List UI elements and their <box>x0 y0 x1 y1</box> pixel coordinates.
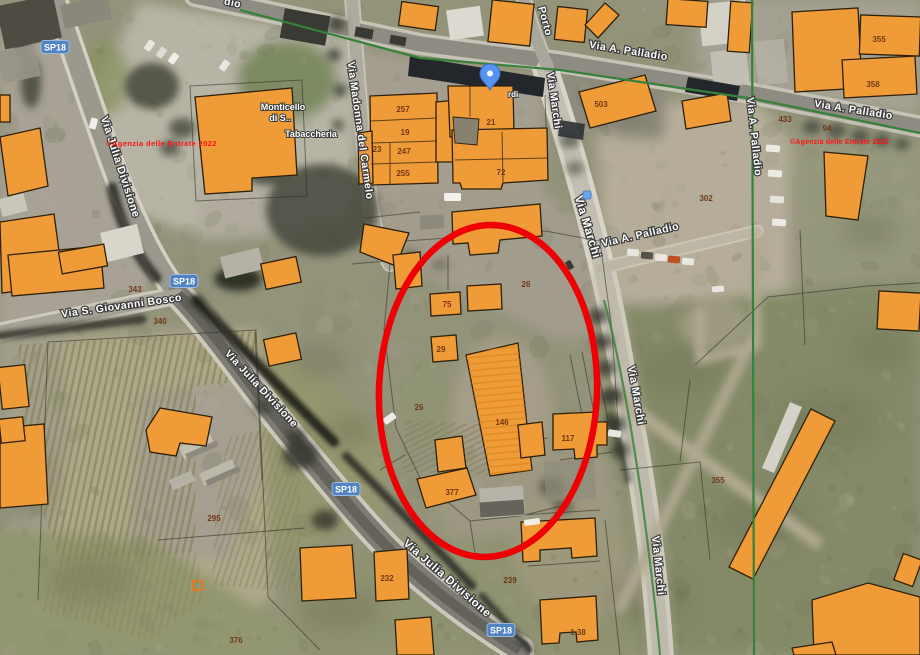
svg-text:340: 340 <box>153 317 167 326</box>
svg-text:355: 355 <box>711 476 725 485</box>
svg-text:117: 117 <box>562 434 575 443</box>
svg-text:19: 19 <box>401 128 410 137</box>
svg-text:23: 23 <box>373 145 382 154</box>
svg-text:376: 376 <box>229 636 243 645</box>
svg-text:©Agenzia delle Entrate 2022: ©Agenzia delle Entrate 2022 <box>106 139 217 148</box>
svg-text:232: 232 <box>380 574 394 583</box>
svg-text:SP18: SP18 <box>44 43 66 53</box>
svg-text:343: 343 <box>128 285 142 294</box>
svg-text:72: 72 <box>497 168 506 177</box>
svg-text:75: 75 <box>443 300 452 309</box>
svg-text:257: 257 <box>396 105 410 114</box>
svg-text:SP18: SP18 <box>490 626 512 636</box>
svg-text:1.38: 1.38 <box>570 628 586 637</box>
svg-text:Monticello: Monticello <box>261 102 306 112</box>
svg-text:302: 302 <box>699 194 713 203</box>
svg-text:Tabaccheria: Tabaccheria <box>285 129 338 139</box>
svg-text:295: 295 <box>207 514 221 523</box>
svg-text:255: 255 <box>396 169 410 178</box>
svg-text:rdi: rdi <box>508 90 518 99</box>
svg-text:SP18: SP18 <box>335 485 357 495</box>
svg-text:26: 26 <box>415 403 424 412</box>
svg-text:94: 94 <box>823 124 832 133</box>
svg-text:503: 503 <box>594 100 608 109</box>
svg-text:433: 433 <box>778 115 792 124</box>
svg-text:26: 26 <box>522 280 531 289</box>
svg-text:©Agenzia delle Entrate 2022: ©Agenzia delle Entrate 2022 <box>790 138 889 146</box>
svg-text:21: 21 <box>487 118 496 127</box>
svg-text:239: 239 <box>503 576 517 585</box>
svg-text:SP18: SP18 <box>173 277 195 287</box>
svg-text:29: 29 <box>437 345 446 354</box>
svg-text:247: 247 <box>397 147 411 156</box>
svg-text:355: 355 <box>872 35 886 44</box>
svg-text:di S..: di S.. <box>269 113 291 123</box>
svg-text:146: 146 <box>495 418 509 427</box>
svg-text:358: 358 <box>866 80 880 89</box>
svg-text:377: 377 <box>445 488 459 497</box>
